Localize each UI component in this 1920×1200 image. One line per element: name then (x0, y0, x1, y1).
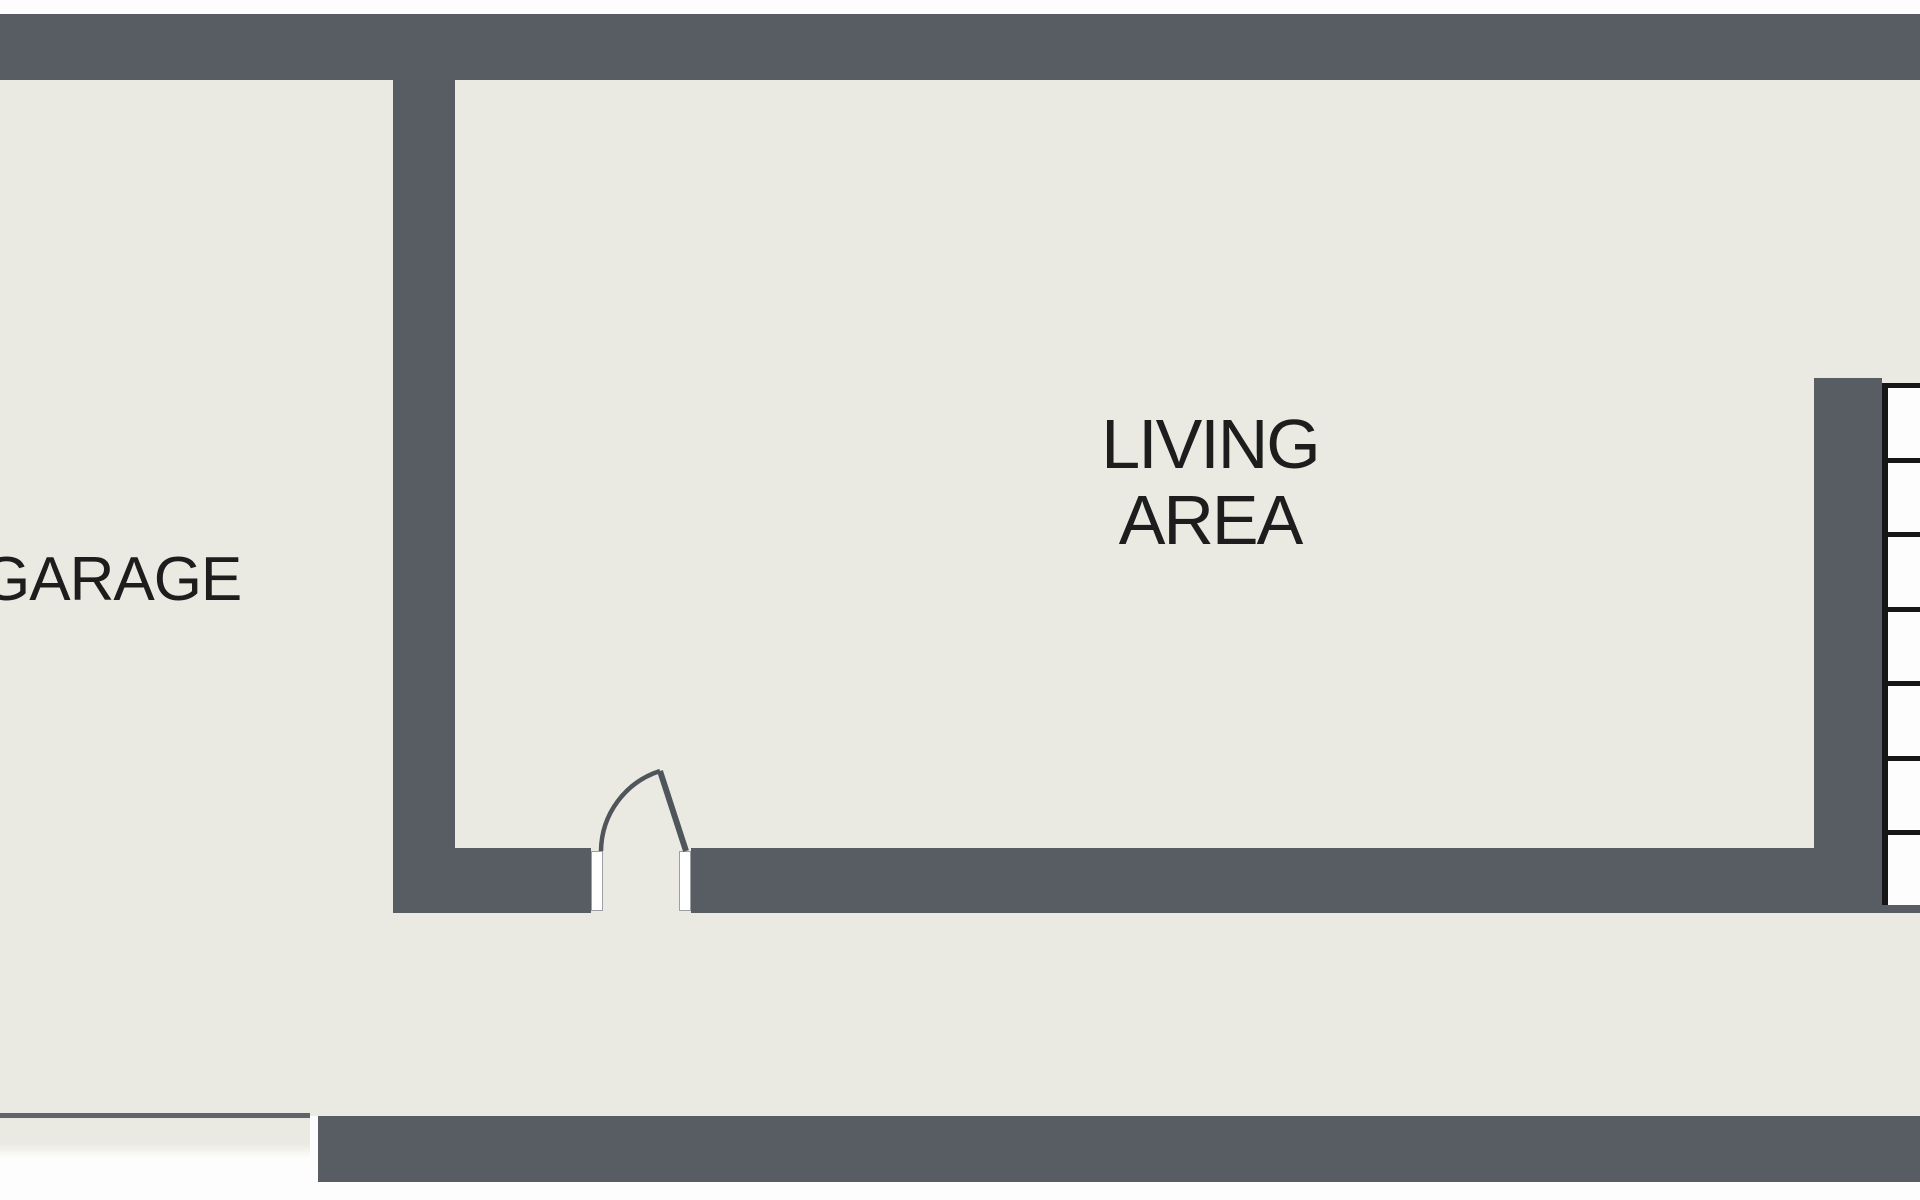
living-label-line1: LIVING (1010, 406, 1410, 482)
bottom-exterior-wall (318, 1116, 1920, 1182)
door-leaf (660, 771, 686, 851)
stair-tread (1888, 532, 1920, 607)
door-swing-icon (560, 740, 740, 870)
stair-tread (1888, 756, 1920, 831)
stair-tread (1888, 681, 1920, 756)
floor-plan-canvas: GARAGE LIVING AREA (0, 0, 1920, 1200)
living-bottom-wall-right-of-door (691, 848, 1814, 913)
stair-tread (1888, 383, 1920, 458)
garage-room-label: GARAGE (0, 546, 241, 614)
living-area-room-label: LIVING AREA (1010, 406, 1410, 558)
living-label-line2: AREA (1010, 482, 1410, 558)
garage-living-divider-wall (393, 80, 455, 913)
stair-side-wall (1814, 378, 1882, 913)
top-exterior-wall (0, 14, 1920, 80)
floor-area (0, 80, 1920, 1116)
stair-tread (1888, 458, 1920, 533)
door-swing-arc (601, 771, 660, 851)
garage-door-line (0, 1113, 310, 1118)
staircase (1882, 383, 1920, 905)
staircase-base-strip (1882, 905, 1920, 913)
stair-tread (1888, 607, 1920, 682)
stair-tread (1888, 830, 1920, 905)
garage-apron-floor (0, 1118, 310, 1158)
